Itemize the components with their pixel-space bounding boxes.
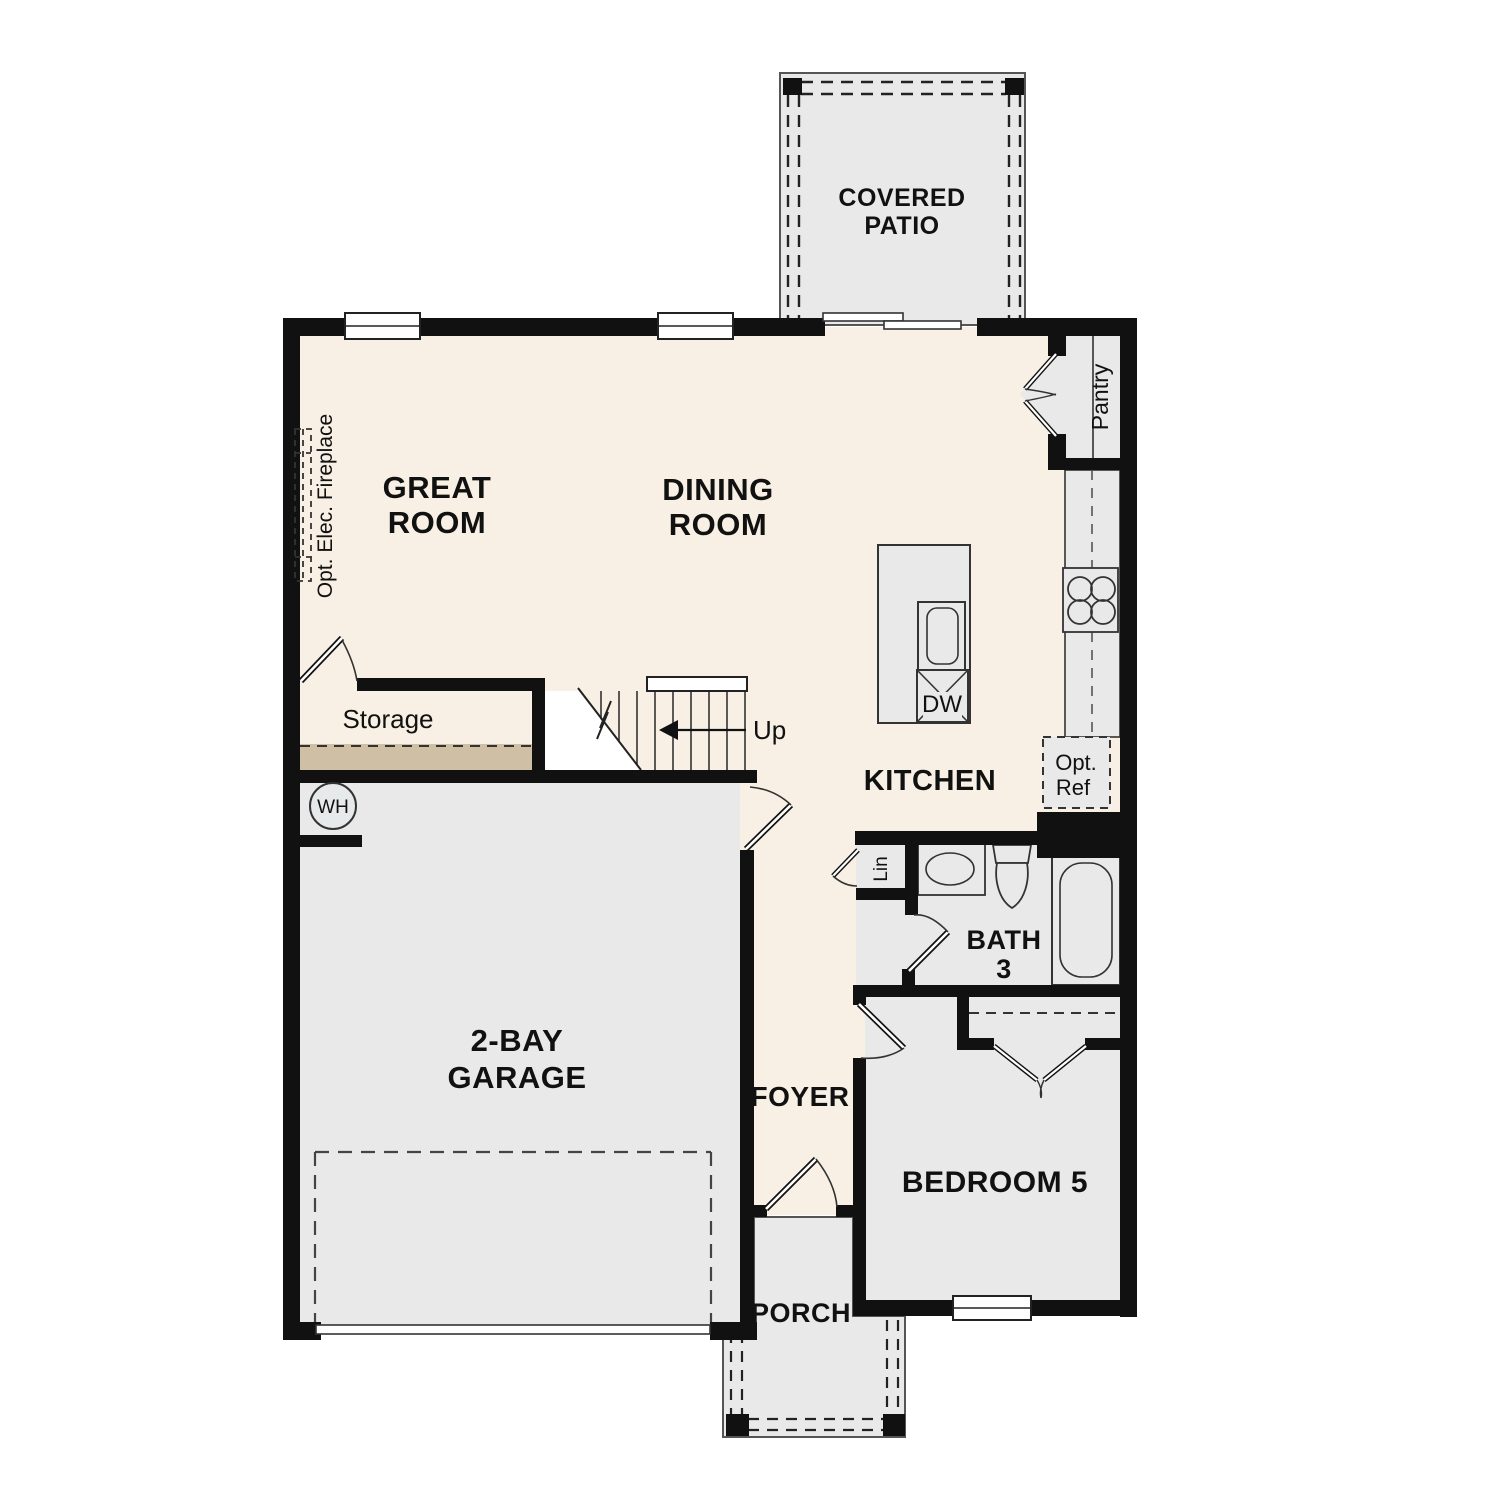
water-heater-label: WH — [317, 797, 349, 818]
wall-bath-door-stub — [902, 969, 915, 985]
window-icon — [953, 1296, 1031, 1320]
wall-pantry-bottom — [1048, 458, 1137, 470]
wall-garage-top — [290, 770, 757, 783]
bathtub-icon — [1052, 855, 1120, 985]
wall-top — [977, 318, 1137, 336]
stair-railing — [647, 677, 747, 691]
great-room-label: GREAT — [383, 470, 492, 505]
wall-closet-bottom — [1085, 1038, 1120, 1050]
dining-room-label: ROOM — [669, 507, 767, 542]
wall-linen-right — [905, 843, 918, 915]
garage-label: GARAGE — [447, 1060, 586, 1095]
wall-left — [283, 318, 300, 1340]
wall-stair-left — [532, 678, 545, 773]
garage-door — [316, 1325, 710, 1334]
wall-bedroom-left — [853, 985, 866, 1005]
foyer-label: FOYER — [751, 1081, 850, 1112]
dishwasher-label: DW — [922, 691, 962, 718]
great-room-label: ROOM — [388, 505, 486, 540]
kitchen-label: KITCHEN — [864, 765, 996, 797]
wall-foyer-bottom — [836, 1205, 865, 1217]
storage-label: Storage — [342, 704, 433, 734]
sink-icon — [927, 608, 958, 664]
linen-label: Lin — [871, 856, 892, 881]
covered-patio-label: COVERED — [838, 184, 965, 212]
kitchen-island: DW — [878, 545, 970, 723]
floor-plan-canvas: COVERED PATIO — [0, 0, 1500, 1500]
porch-post-icon — [883, 1414, 905, 1436]
water-heater-icon: WH — [310, 783, 356, 829]
storage-shelf-strip — [300, 744, 535, 770]
floor-plan-svg: COVERED PATIO — [0, 0, 1500, 1500]
bath-sink-icon — [918, 843, 985, 895]
wall-wh-stub — [290, 835, 362, 847]
opt-ref-label: Opt. — [1055, 750, 1097, 775]
wall-closet-bottom — [957, 1038, 994, 1050]
bedroom5-label: BEDROOM 5 — [902, 1166, 1088, 1199]
patio-post-icon — [783, 78, 802, 95]
wall-bath-bottom — [853, 985, 1137, 997]
pantry-label: Pantry — [1087, 363, 1113, 430]
opt-fireplace-label: Opt. Elec. Fireplace — [314, 414, 337, 598]
bath3-room: Lin BATH 3 — [856, 843, 1120, 985]
wall-foyer-bottom — [740, 1205, 767, 1217]
window-icon — [658, 313, 733, 339]
porch-post-icon — [726, 1414, 749, 1436]
wall-kitchen-bath — [1037, 812, 1137, 858]
dishwasher-icon: DW — [917, 670, 968, 722]
wall-top — [733, 318, 825, 336]
wall-top — [420, 318, 658, 336]
bath3-label: 3 — [996, 954, 1012, 984]
wall-pantry-stub — [1048, 434, 1066, 458]
covered-patio-label: PATIO — [864, 212, 939, 240]
opt-ref-label: Ref — [1056, 775, 1091, 800]
wall-linen-bottom — [856, 888, 907, 900]
wall-storage — [357, 678, 541, 691]
dining-room-label: DINING — [662, 472, 774, 507]
garage-label: 2-BAY — [471, 1023, 564, 1058]
wall-kitchen-bath — [855, 831, 1060, 845]
wall-pantry-stub — [1048, 336, 1066, 356]
bath3-label: BATH — [967, 925, 1042, 955]
porch-label: PORCH — [751, 1298, 851, 1328]
covered-patio-room: COVERED PATIO — [780, 73, 1025, 325]
patio-post-icon — [1005, 78, 1024, 95]
stairs-up-label: Up — [753, 715, 786, 745]
window-icon — [345, 313, 420, 339]
wall-bedroom-left — [853, 1058, 866, 1303]
